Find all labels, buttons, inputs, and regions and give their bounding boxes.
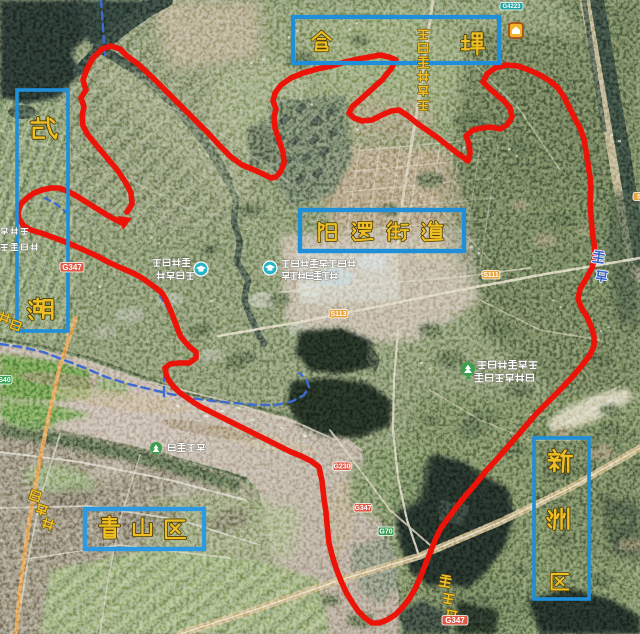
svg-text:G347: G347	[62, 263, 82, 272]
svg-text:G230: G230	[333, 464, 350, 471]
svg-text:G347: G347	[354, 505, 371, 512]
svg-text:S111: S111	[483, 272, 499, 279]
svg-text:G4223: G4223	[502, 4, 521, 10]
svg-text:S113: S113	[331, 311, 347, 318]
svg-text:G70: G70	[379, 529, 392, 536]
svg-text:S40: S40	[0, 377, 11, 384]
svg-text:G347: G347	[445, 616, 465, 625]
